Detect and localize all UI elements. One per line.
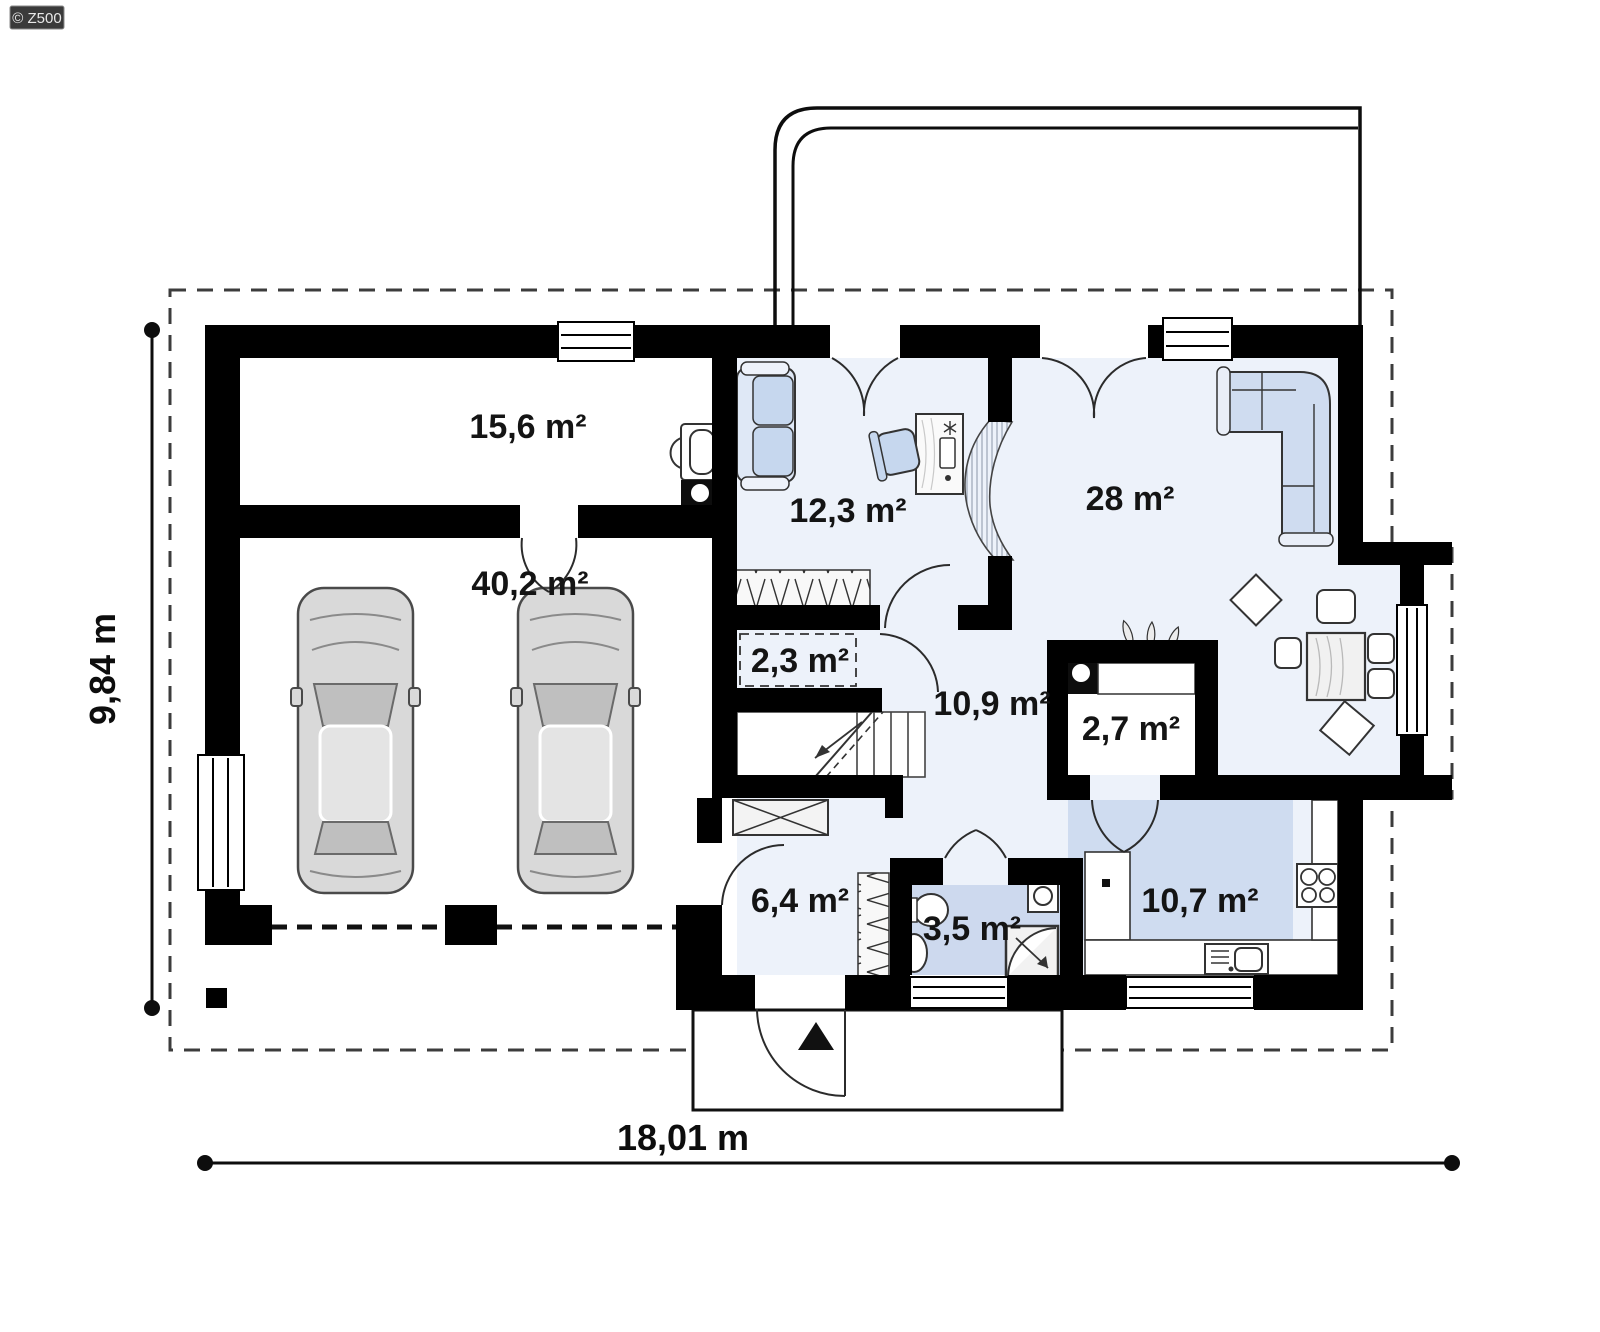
room-label-garage: 40,2 m² [471, 565, 588, 603]
office-wardrobe-hatch [733, 570, 870, 608]
car-left [291, 588, 420, 893]
window-kitchen-bottom [1126, 977, 1254, 1008]
logo-badge: © Z500 [10, 6, 64, 29]
room-label-hall: 10,9 m² [933, 685, 1050, 723]
window-bath-bottom [910, 977, 1008, 1008]
room-label-living: 28 m² [1086, 480, 1175, 518]
stairs [737, 712, 925, 777]
hall-cabinet-x [733, 800, 828, 835]
dimension-width: 18,01 m [197, 1117, 1460, 1171]
room-label-kitchen: 10,7 m² [1141, 882, 1258, 920]
room-label-closet: 2,3 m² [751, 642, 849, 680]
room-label-utility: 15,6 m² [469, 408, 586, 446]
office-sofa [737, 362, 795, 490]
room-label-pantry: 2,7 m² [1082, 710, 1180, 748]
floor-plan-page: 15,6 m² 40,2 m² 12,3 m² 28 m² 2,3 m² 10,… [0, 0, 1600, 1332]
dimension-height: 9,84 m [82, 322, 160, 1016]
floor-plan-drawing: 15,6 m² 40,2 m² 12,3 m² 28 m² 2,3 m² 10,… [0, 0, 1600, 1332]
terrace-outline [775, 108, 1360, 335]
entrance-porch [693, 1010, 1062, 1110]
window-utility-top [558, 322, 634, 361]
cooktop [1297, 864, 1338, 907]
entry-coat-rack-hatch [858, 873, 889, 985]
dimension-width-label: 18,01 m [617, 1117, 749, 1158]
window-garage-left [198, 755, 244, 890]
room-label-bath: 3,5 m² [923, 910, 1021, 948]
desk [916, 414, 963, 494]
window-bay-right [1397, 605, 1427, 735]
car-right [511, 588, 640, 893]
oven [1205, 944, 1268, 974]
logo-text: © Z500 [12, 10, 61, 27]
window-living-top [1163, 318, 1232, 360]
room-label-entry: 6,4 m² [751, 882, 849, 920]
dimension-height-label: 9,84 m [82, 613, 123, 725]
room-label-office: 12,3 m² [789, 492, 906, 530]
boiler [671, 424, 719, 480]
